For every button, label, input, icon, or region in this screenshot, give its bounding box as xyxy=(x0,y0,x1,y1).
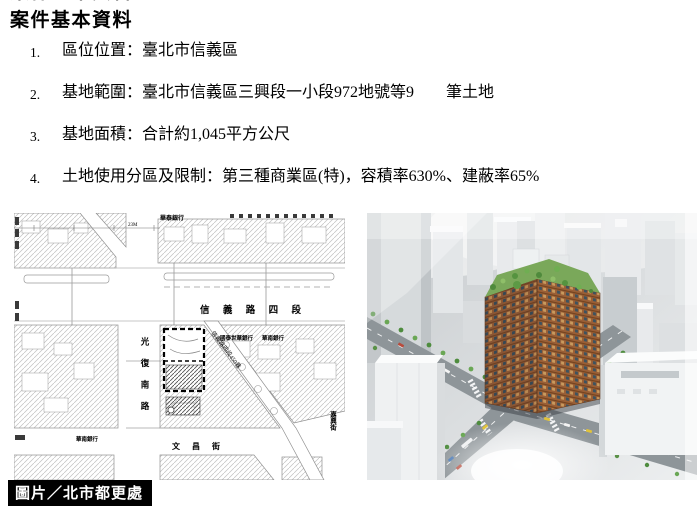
highlight-building xyxy=(485,249,600,419)
list-number: 2. xyxy=(30,84,40,105)
list-text: 基地範圍：臺北市信義區三興段一小段972地號等9 筆土地 xyxy=(62,84,494,101)
cropped-text-fragments: 案件基本資料 xyxy=(10,0,170,4)
list-item-site-area: 3. 基地面積：合計約1,045平方公尺 xyxy=(0,124,688,145)
list-text: 區位位置：臺北市信義區 xyxy=(62,42,238,59)
road-label-wenchang: 文 昌 街 xyxy=(172,441,225,451)
map-label-huanan-bank: 華南銀行 xyxy=(262,334,285,342)
page-title: 案件基本資料 xyxy=(10,5,133,32)
map-label-huanan-bank-west: 華南銀行 xyxy=(76,435,99,443)
list-text: 土地使用分區及限制：第三種商業區(特)，容積率630%、建蔽率65% xyxy=(62,168,539,185)
site-location-map-image: 華泰銀行 23M 信 義 路 四 段 光復南路 國泰世華銀行 華南銀行 信義路四… xyxy=(14,213,345,480)
list-item-location: 1. 區位位置：臺北市信義區 xyxy=(0,40,688,61)
list-number: 3. xyxy=(30,126,40,147)
white-building-right xyxy=(599,351,697,457)
list-number: 4. xyxy=(30,168,40,189)
list-number: 1. xyxy=(30,42,40,63)
list-item-zoning: 4. 土地使用分區及限制：第三種商業區(特)，容積率630%、建蔽率65% xyxy=(0,166,688,187)
map-dimension-label: 23M xyxy=(128,223,138,228)
white-building-left xyxy=(367,355,445,480)
road-label-xinyi: 信 義 路 四 段 xyxy=(200,304,307,316)
road-label-guangfu: 光復南路 xyxy=(140,336,150,423)
slide: 案件基本資料 案件基本資料 1. 區位位置：臺北市信義區 2. 基地範圍：臺北市… xyxy=(0,0,700,506)
list-item-site-scope: 2. 基地範圍：臺北市信義區三興段一小段972地號等9 筆土地 xyxy=(0,82,688,103)
site-parcel-outline xyxy=(164,329,204,415)
list-text: 基地面積：合計約1,045平方公尺 xyxy=(62,126,290,143)
building-3d-render-image xyxy=(367,213,697,480)
image-credit-caption: 圖片／北市都更處 xyxy=(8,480,152,506)
map-label-huatai-bank: 華泰銀行 xyxy=(160,214,184,222)
map-label-cathay-bank: 國泰世華銀行 xyxy=(220,334,254,342)
